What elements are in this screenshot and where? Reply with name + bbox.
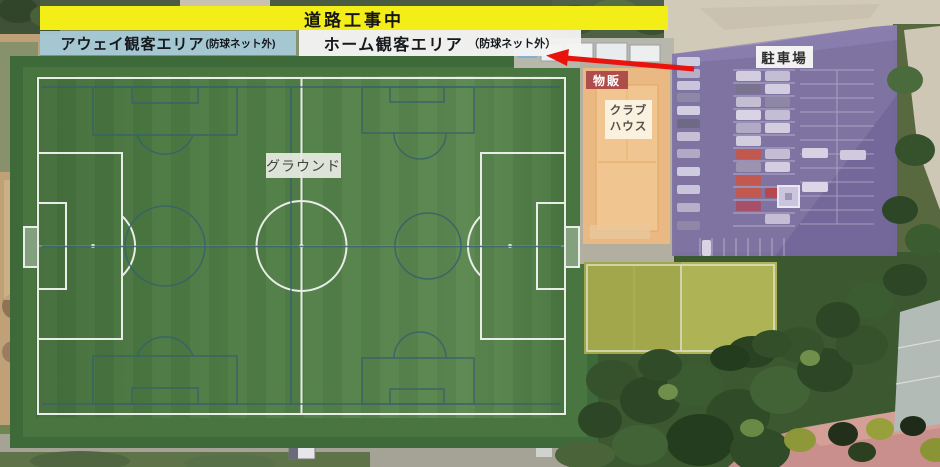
away-area-label: アウェイ観客エリア (60, 33, 204, 54)
clubhouse-label: クラブ ハウス (605, 100, 652, 139)
construction-banner-text: 道路工事中 (304, 6, 404, 31)
stadium-map: 道路工事中 アウェイ観客エリア (防球ネット外) ホーム観客エリア （防球ネット… (0, 0, 940, 467)
clubhouse-label-line1: クラブ (610, 104, 648, 120)
home-spectator-area-banner: ホーム観客エリア （防球ネット外） (299, 30, 581, 56)
ground-label: グラウンド (266, 153, 341, 178)
parking-label-text: 駐車場 (761, 47, 808, 67)
aerial-photo (0, 0, 940, 467)
construction-banner: 道路工事中 (40, 6, 668, 30)
clubhouse-overlay (580, 62, 674, 264)
goal-left (24, 227, 38, 267)
home-area-note: （防球ネット外） (468, 35, 556, 51)
home-area-label: ホーム観客エリア (324, 31, 464, 55)
merchandise-badge: 物販 (586, 71, 628, 89)
merchandise-badge-text: 物販 (593, 72, 621, 89)
away-spectator-area-banner: アウェイ観客エリア (防球ネット外) (40, 31, 296, 55)
soccer-field (10, 56, 598, 448)
clubhouse-label-line2: ハウス (610, 120, 648, 136)
ground-label-text: グラウンド (266, 156, 341, 176)
parking-label: 駐車場 (756, 46, 813, 68)
away-area-note: (防球ネット外) (206, 36, 276, 51)
goal-right (565, 227, 579, 267)
